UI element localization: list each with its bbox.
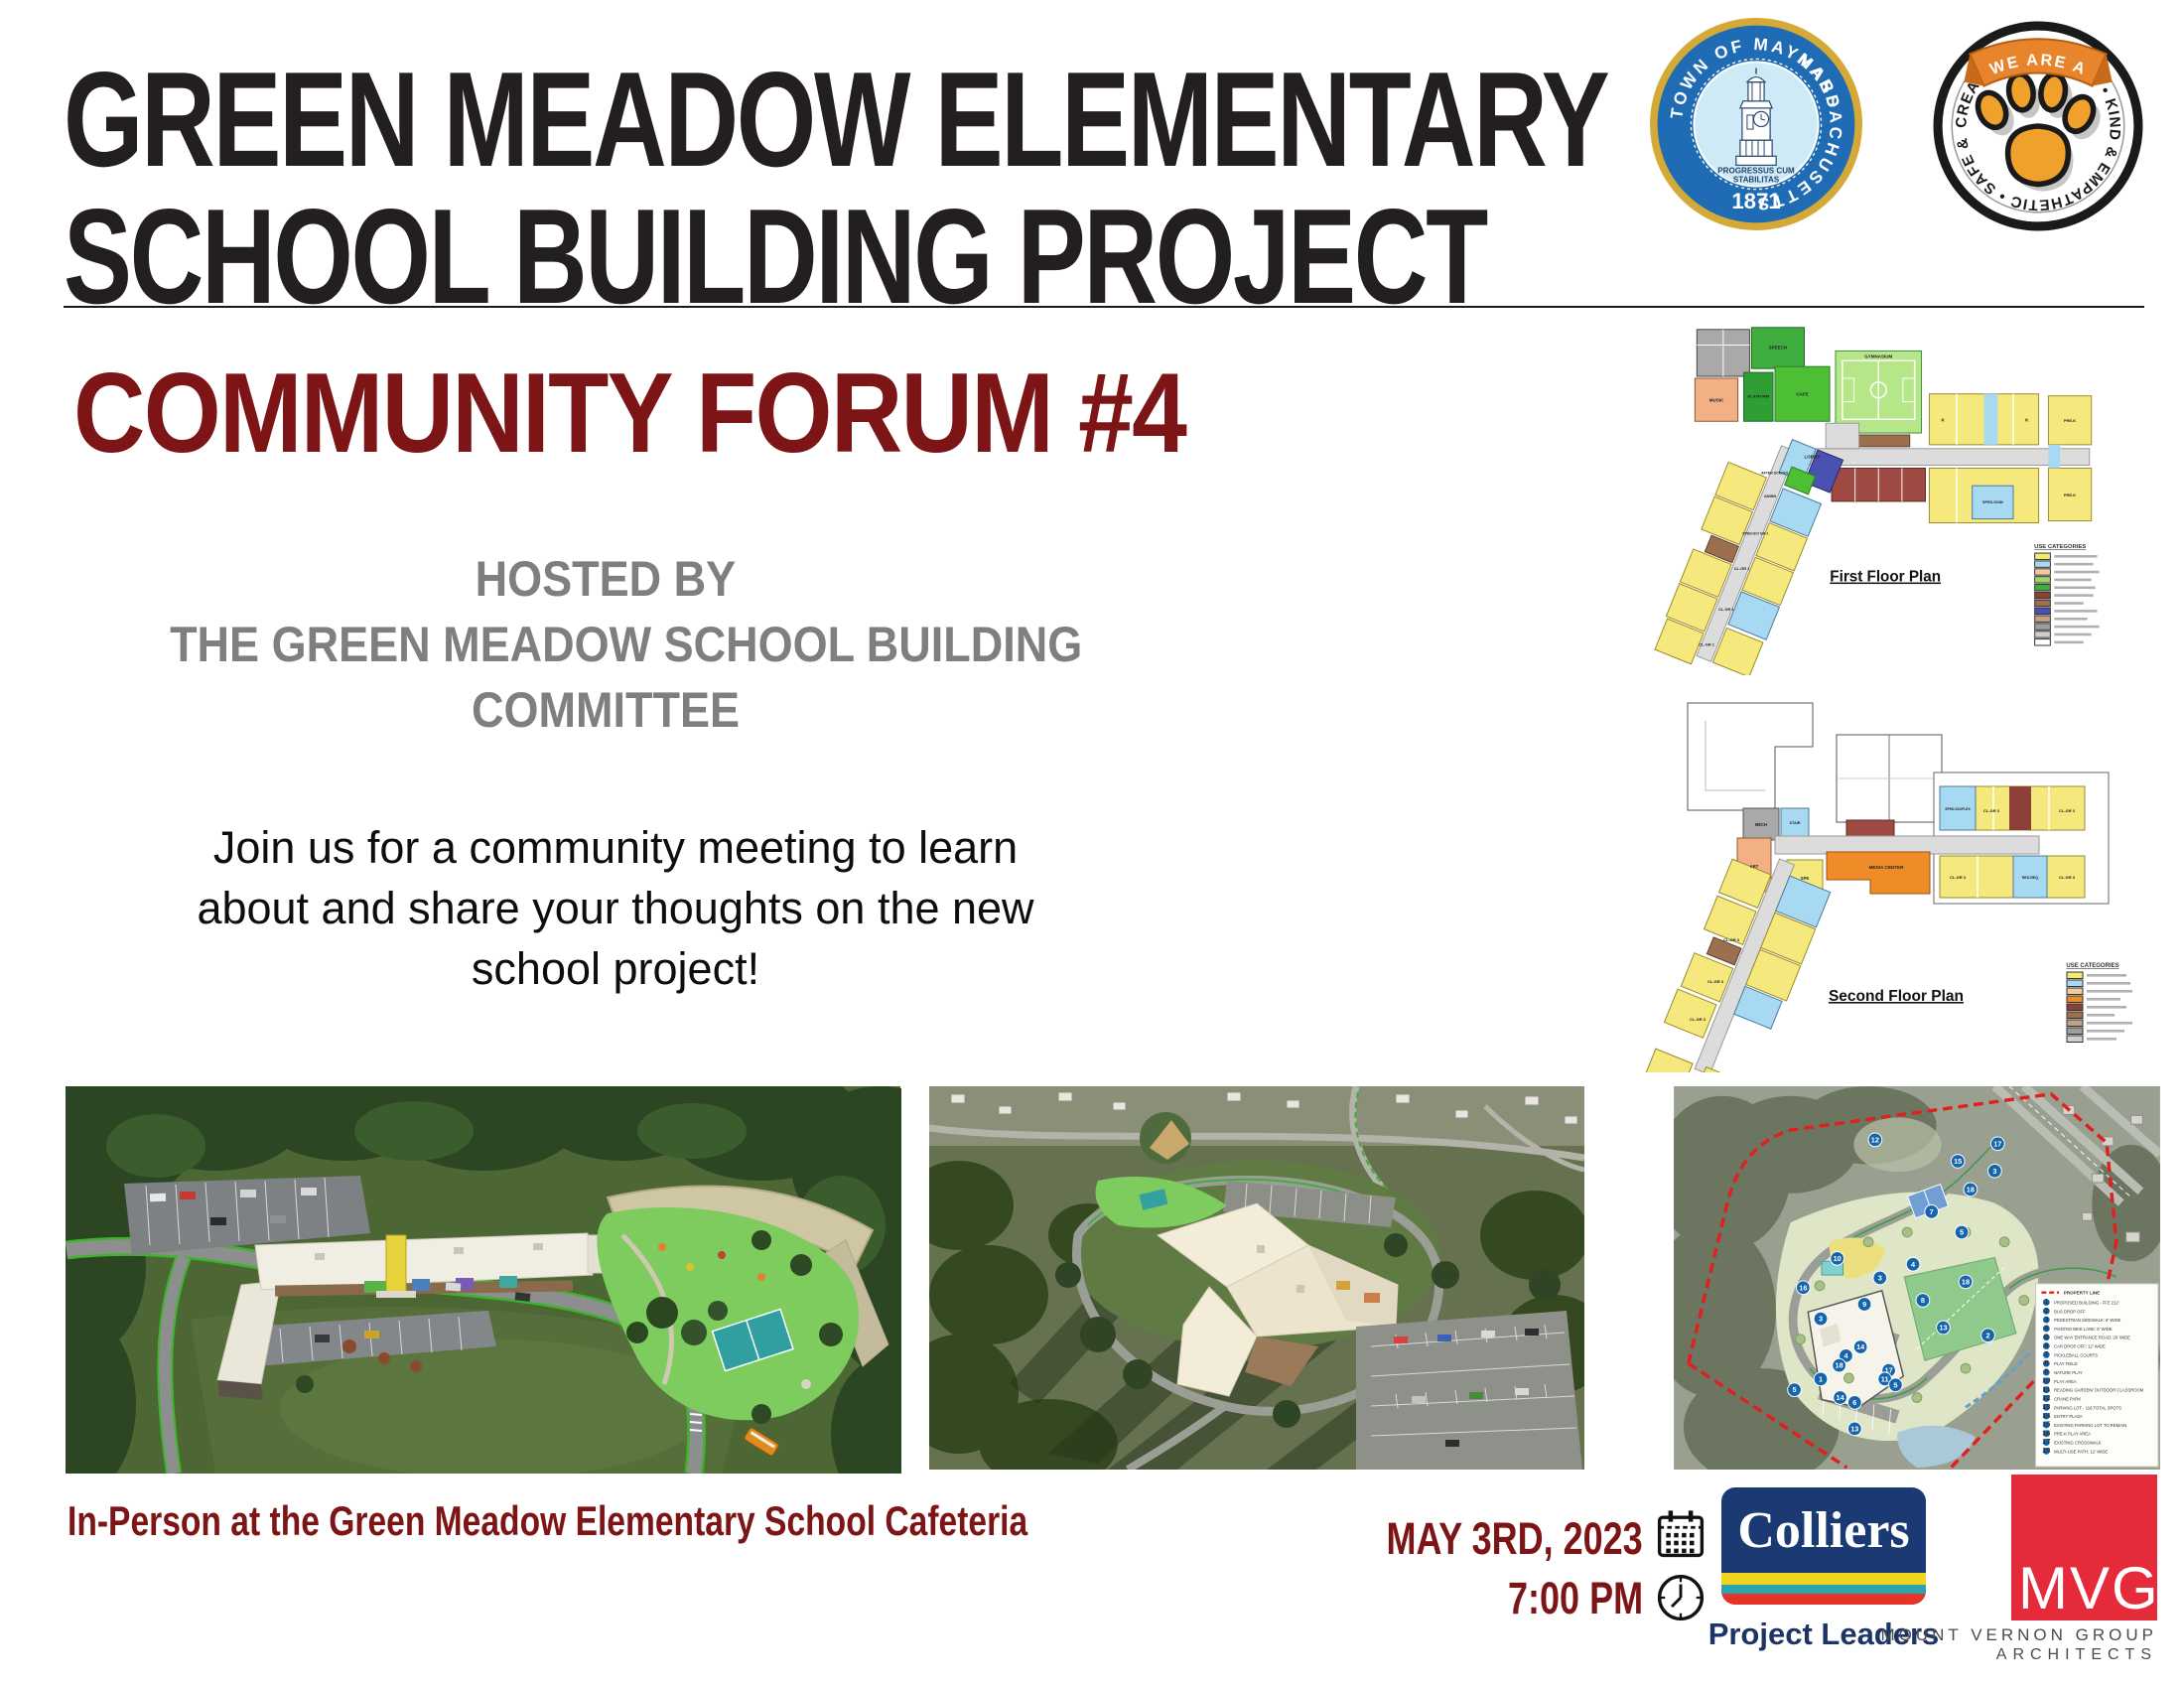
svg-text:6: 6 <box>2044 1340 2048 1349</box>
event-location: In-Person at the Green Meadow Elementary… <box>68 1497 1268 1545</box>
svg-text:5: 5 <box>1893 1380 1897 1389</box>
svg-text:MEDIA CENTER: MEDIA CENTER <box>1869 865 1904 870</box>
svg-text:EXISTING CROSSWALK: EXISTING CROSSWALK <box>2054 1441 2102 1446</box>
svg-text:9: 9 <box>1862 1300 1866 1309</box>
svg-text:7: 7 <box>1930 1207 1934 1216</box>
svg-text:1: 1 <box>2044 1297 2048 1306</box>
hosted-line1: HOSTED BY <box>476 546 737 612</box>
svg-text:CL-GR 3: CL-GR 3 <box>2059 808 2076 813</box>
svg-text:NATURE PLAY: NATURE PLAY <box>2054 1370 2083 1375</box>
svg-text:18: 18 <box>1962 1277 1970 1286</box>
seal-year: 1871 <box>1731 189 1780 213</box>
first-floor-plan: SPEECH MUSIC PLATFORM CAFE GYMNASIUM LOB… <box>1640 318 2148 675</box>
colliers-stripe-red <box>1721 1594 1926 1605</box>
svg-text:ART: ART <box>1750 864 1759 869</box>
svg-text:5: 5 <box>1960 1228 1964 1237</box>
svg-text:CL-GR 3: CL-GR 3 <box>2059 875 2076 880</box>
fp2-label: Second Floor Plan <box>1829 988 1964 1005</box>
svg-text:18: 18 <box>1836 1361 1843 1370</box>
svg-text:18: 18 <box>1967 1185 1975 1194</box>
mvg-name-line1: MOUNT VERNON GROUP <box>1876 1624 2157 1645</box>
hosted-line3: COMMITTEE <box>472 677 740 743</box>
forum-heading: COMMUNITY FORUM #4 <box>73 357 1337 471</box>
svg-text:5: 5 <box>1793 1385 1797 1394</box>
svg-text:18: 18 <box>2042 1446 2050 1455</box>
svg-text:12: 12 <box>2042 1393 2050 1402</box>
svg-text:9: 9 <box>2044 1367 2048 1376</box>
svg-text:PROPOSED BUILDING - FFE 212': PROPOSED BUILDING - FFE 212' <box>2054 1300 2119 1305</box>
svg-text:RES-REQ: RES-REQ <box>2022 876 2039 880</box>
fp2-legend: USE CATEGORIES <box>2066 963 2132 1043</box>
invitation-text: Join us for a community meeting to learn… <box>149 818 1082 999</box>
parking-main <box>1356 1311 1582 1470</box>
svg-text:17: 17 <box>2042 1437 2050 1446</box>
svg-text:PRE-K: PRE-K <box>2064 492 2076 497</box>
svg-text:MULTI-USE PATH: 12' WIDE: MULTI-USE PATH: 12' WIDE <box>2054 1449 2108 1454</box>
svg-text:15: 15 <box>1954 1157 1962 1166</box>
fp2-drawing: MECH STAIR ART SPE MEDIA CENTER SPED-SCI… <box>1640 703 2109 1072</box>
svg-text:SPED-SCI GR-1: SPED-SCI GR-1 <box>1742 531 1768 535</box>
svg-text:11: 11 <box>2042 1384 2050 1393</box>
event-date: MAY 3RD, 2023 <box>1231 1513 1643 1565</box>
school-paw-seal-icon: CREATIVE & CURIOUS • KIND & EMPATHETIC •… <box>1930 16 2146 232</box>
svg-text:CL-GR 1: CL-GR 1 <box>1734 566 1751 571</box>
svg-text:STAIR: STAIR <box>1789 821 1800 825</box>
svg-text:CRANE PARK: CRANE PARK <box>2054 1396 2081 1401</box>
svg-text:16: 16 <box>1799 1283 1807 1292</box>
svg-text:16: 16 <box>2042 1428 2050 1437</box>
fp1-drawing: SPEECH MUSIC PLATFORM CAFE GYMNASIUM LOB… <box>1653 328 2092 675</box>
invitation-line2: about and share your thoughts on the new <box>149 879 1082 939</box>
svg-text:10: 10 <box>1834 1254 1842 1263</box>
svg-text:PARKING LOT - 116 TOTAL SPOTS: PARKING LOT - 116 TOTAL SPOTS <box>2054 1405 2121 1410</box>
svg-text:11: 11 <box>1881 1374 1889 1383</box>
fp1-legend: USE CATEGORIES <box>2034 544 2099 645</box>
invitation-line1: Join us for a community meeting to learn <box>149 818 1082 879</box>
colliers-stripe-yellow <box>1721 1573 1926 1585</box>
fp1-label: First Floor Plan <box>1830 569 1941 586</box>
clock-icon <box>1654 1571 1707 1624</box>
svg-text:GYMNASIUM: GYMNASIUM <box>1864 353 1892 358</box>
calendar-icon <box>1654 1507 1707 1561</box>
svg-text:CL-GR 3: CL-GR 3 <box>1707 979 1724 984</box>
mvg-initials: MVG <box>2018 1559 2160 1618</box>
svg-text:LOBBY: LOBBY <box>1805 455 1821 460</box>
colliers-stripe-teal <box>1721 1585 1926 1594</box>
svg-text:17: 17 <box>1993 1139 2001 1148</box>
svg-text:PLATFORM: PLATFORM <box>1748 394 1770 399</box>
colliers-wordmark: Colliers <box>1721 1487 1926 1573</box>
svg-text:SPE: SPE <box>1801 876 1810 881</box>
svg-text:8: 8 <box>1921 1296 1925 1305</box>
baseball-field <box>1140 1112 1191 1164</box>
event-time: 7:00 PM <box>1231 1573 1643 1624</box>
seal-motto-1: PROGRESSUS CUM <box>1717 166 1795 175</box>
svg-text:PICKLEBALL COURTS: PICKLEBALL COURTS <box>2054 1352 2098 1357</box>
svg-text:CAFE: CAFE <box>1796 392 1808 397</box>
svg-text:12: 12 <box>1871 1135 1879 1144</box>
svg-text:CL-GR 3: CL-GR 3 <box>1690 1017 1706 1022</box>
svg-text:SPED-SCIM: SPED-SCIM <box>1982 500 2003 504</box>
svg-text:3: 3 <box>1819 1315 1823 1324</box>
svg-text:MECH: MECH <box>1755 822 1767 827</box>
svg-text:PLAY FIELD: PLAY FIELD <box>2054 1361 2077 1366</box>
svg-text:USE CATEGORIES: USE CATEGORIES <box>2034 544 2086 550</box>
svg-text:EXISTING PARKING LOT TO REMAIN: EXISTING PARKING LOT TO REMAIN <box>2054 1423 2126 1428</box>
svg-text:AFTER SCHOOL: AFTER SCHOOL <box>1761 471 1790 475</box>
svg-text:6: 6 <box>1852 1398 1856 1407</box>
hosted-line2: THE GREEN MEADOW SCHOOL BUILDING <box>170 612 1082 677</box>
svg-text:8: 8 <box>2044 1358 2048 1367</box>
colliers-logo: Colliers <box>1721 1487 1926 1605</box>
aerial-rendering-overview <box>929 1086 1584 1470</box>
svg-text:ONE WAY ENTRANCE ROAD; 20' WID: ONE WAY ENTRANCE ROAD; 20' WIDE <box>2054 1336 2130 1340</box>
siteplan-legend: PROPERTY LINE 1 2 3 4 5 6 7 8 9 10 11 12… <box>2036 1284 2158 1467</box>
svg-text:14: 14 <box>2042 1411 2051 1420</box>
svg-text:CL-GR 3: CL-GR 3 <box>1983 808 2000 813</box>
aerial-rendering-front <box>66 1086 901 1474</box>
svg-text:PROPERTY LINE: PROPERTY LINE <box>2064 1291 2100 1296</box>
mvg-name: MOUNT VERNON GROUP ARCHITECTS <box>1876 1624 2157 1665</box>
flyer-page: GREEN MEADOW ELEMENTARY SCHOOL BUILDING … <box>0 0 2184 1688</box>
svg-text:PRE-K PLAY AREA: PRE-K PLAY AREA <box>2054 1432 2091 1437</box>
second-floor-plan: MECH STAIR ART SPE MEDIA CENTER SPED-SCI… <box>1636 681 2172 1072</box>
svg-text:13: 13 <box>1939 1324 1947 1333</box>
header-divider <box>64 306 2144 308</box>
svg-text:ADMIN: ADMIN <box>1764 494 1777 498</box>
svg-text:14: 14 <box>1837 1393 1845 1402</box>
town-of-maynard-seal-icon: PROGRESSUS CUM STABILITAS TOWN OF MAYNAR… <box>1648 16 1864 232</box>
svg-text:USE CATEGORIES: USE CATEGORIES <box>2066 963 2118 969</box>
svg-text:READING GARDEN/ OUTDOOR CLASSR: READING GARDEN/ OUTDOOR CLASSROOM <box>2054 1388 2144 1393</box>
svg-text:10: 10 <box>2042 1376 2050 1385</box>
svg-text:PLAY AREA: PLAY AREA <box>2054 1379 2077 1384</box>
svg-text:CAR DROP OFF: 12' WIDE: CAR DROP OFF: 12' WIDE <box>2054 1344 2106 1349</box>
svg-text:1: 1 <box>1819 1374 1823 1383</box>
svg-text:2: 2 <box>2044 1306 2048 1315</box>
svg-text:13: 13 <box>1850 1424 1858 1433</box>
svg-text:MUSIC: MUSIC <box>1709 398 1724 403</box>
svg-text:2: 2 <box>1985 1331 1989 1339</box>
svg-text:BUS DROP OFF: BUS DROP OFF <box>2054 1309 2086 1314</box>
svg-text:CL-GR 3: CL-GR 3 <box>1723 937 1740 942</box>
svg-text:PRE-K: PRE-K <box>2064 418 2076 423</box>
svg-text:CL-GR 1: CL-GR 1 <box>1699 641 1715 646</box>
svg-text:7: 7 <box>2044 1349 2048 1358</box>
svg-text:PEDESTRIAN SIDEWALK: 6' WIDE: PEDESTRIAN SIDEWALK: 6' WIDE <box>2054 1318 2120 1323</box>
hosted-by-block: HOSTED BY THE GREEN MEADOW SCHOOL BUILDI… <box>119 546 1092 743</box>
svg-text:3: 3 <box>2044 1315 2048 1324</box>
seal-motto-2: STABILITAS <box>1733 176 1780 185</box>
svg-text:3: 3 <box>1992 1167 1996 1176</box>
svg-text:5: 5 <box>2044 1332 2048 1340</box>
svg-text:14: 14 <box>1856 1342 1865 1351</box>
site-plan: 12 17 15 3 18 7 5 10 4 3 18 16 9 8 3 13 … <box>1674 1086 2160 1470</box>
svg-text:CL-GR 1: CL-GR 1 <box>1718 607 1735 612</box>
svg-text:SPEECH: SPEECH <box>1769 345 1788 350</box>
svg-text:SPED-SCI/FLEX: SPED-SCI/FLEX <box>1945 807 1971 811</box>
svg-text:13: 13 <box>2042 1402 2050 1411</box>
mvg-logo: MVG <box>2011 1475 2157 1620</box>
svg-text:PAINTED BIKE LANE: 6' WIDE: PAINTED BIKE LANE: 6' WIDE <box>2054 1327 2113 1332</box>
mvg-name-line2: ARCHITECTS <box>1876 1645 2157 1665</box>
svg-text:ENTRY PLAZA: ENTRY PLAZA <box>2054 1414 2083 1419</box>
invitation-line3: school project! <box>149 939 1082 1000</box>
svg-text:CL-GR 3: CL-GR 3 <box>1950 875 1967 880</box>
svg-text:15: 15 <box>2042 1420 2050 1429</box>
svg-text:3: 3 <box>1878 1274 1882 1283</box>
